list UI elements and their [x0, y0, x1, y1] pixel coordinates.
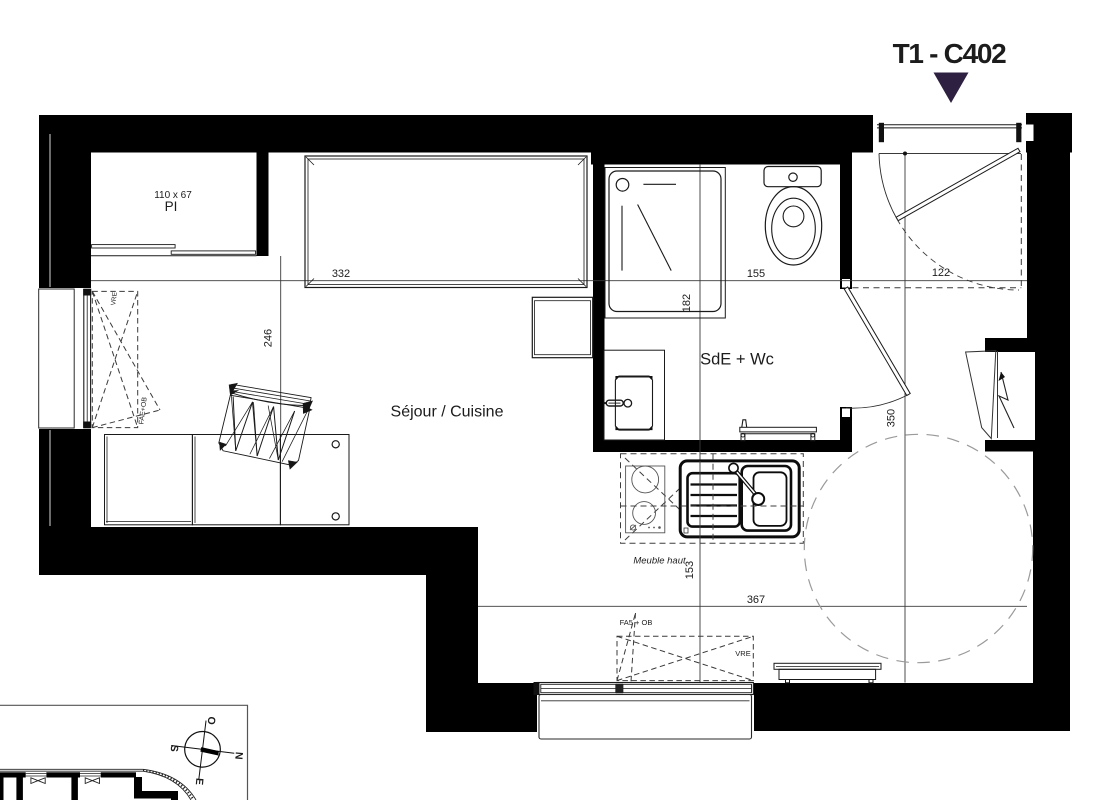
svg-text:155: 155: [747, 268, 765, 280]
svg-text:S: S: [168, 744, 181, 752]
svg-text:O: O: [205, 716, 218, 725]
svg-text:350: 350: [886, 409, 898, 427]
svg-text:332: 332: [332, 268, 350, 280]
svg-text:367: 367: [747, 594, 765, 606]
svg-text:FA5 + OB: FA5 + OB: [620, 618, 653, 627]
svg-text:SdE + Wc: SdE + Wc: [700, 351, 774, 369]
svg-text:182: 182: [681, 294, 693, 312]
svg-text:N: N: [232, 751, 245, 760]
svg-text:246: 246: [263, 329, 275, 347]
svg-text:122: 122: [932, 267, 950, 279]
svg-text:E: E: [193, 777, 206, 785]
svg-text:Meuble haut: Meuble haut: [633, 556, 686, 567]
svg-text:PI: PI: [165, 199, 178, 214]
svg-text:VRE: VRE: [735, 649, 750, 658]
svg-text:T1 - C402: T1 - C402: [893, 38, 1007, 69]
svg-text:Séjour / Cuisine: Séjour / Cuisine: [391, 404, 504, 421]
svg-text:153: 153: [684, 561, 696, 579]
